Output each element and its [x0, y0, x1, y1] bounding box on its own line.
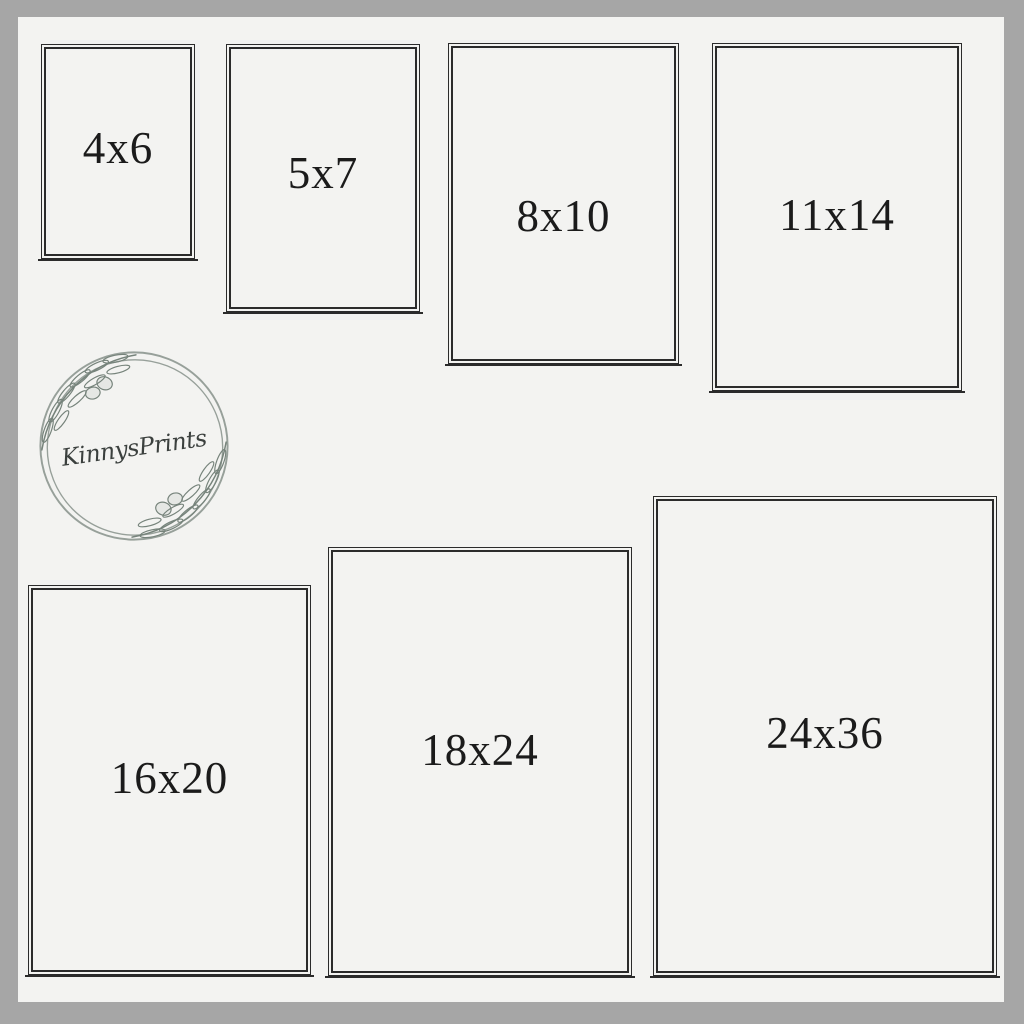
size-frame-16x20: 16x20 [28, 585, 311, 975]
print-size-chart-image: { "page": { "background_color": "#f3f3f1… [0, 0, 1024, 1024]
size-label-18x24: 18x24 [329, 536, 631, 963]
size-label-8x10: 8x10 [449, 56, 678, 375]
size-label-11x14: 11x14 [713, 42, 961, 388]
size-label-16x20: 16x20 [29, 584, 310, 972]
size-frame-11x14: 11x14 [712, 43, 962, 391]
size-frame-18x24: 18x24 [328, 547, 632, 976]
size-frame-8x10: 8x10 [448, 43, 679, 364]
size-label-24x36: 24x36 [654, 494, 996, 972]
size-chart-canvas: 4x6 5x7 8x10 11x14 16x20 18x24 24x36 [18, 17, 1004, 1002]
size-frame-4x6: 4x6 [41, 44, 195, 259]
brand-logo: KinnysPrints [36, 348, 232, 544]
size-frame-24x36: 24x36 [653, 496, 997, 976]
brand-name: KinnysPrints [59, 424, 209, 472]
size-frame-5x7: 5x7 [226, 44, 420, 312]
size-label-5x7: 5x7 [227, 40, 419, 306]
size-label-4x6: 4x6 [42, 41, 194, 254]
logo-wreath-icon: KinnysPrints [36, 348, 232, 544]
